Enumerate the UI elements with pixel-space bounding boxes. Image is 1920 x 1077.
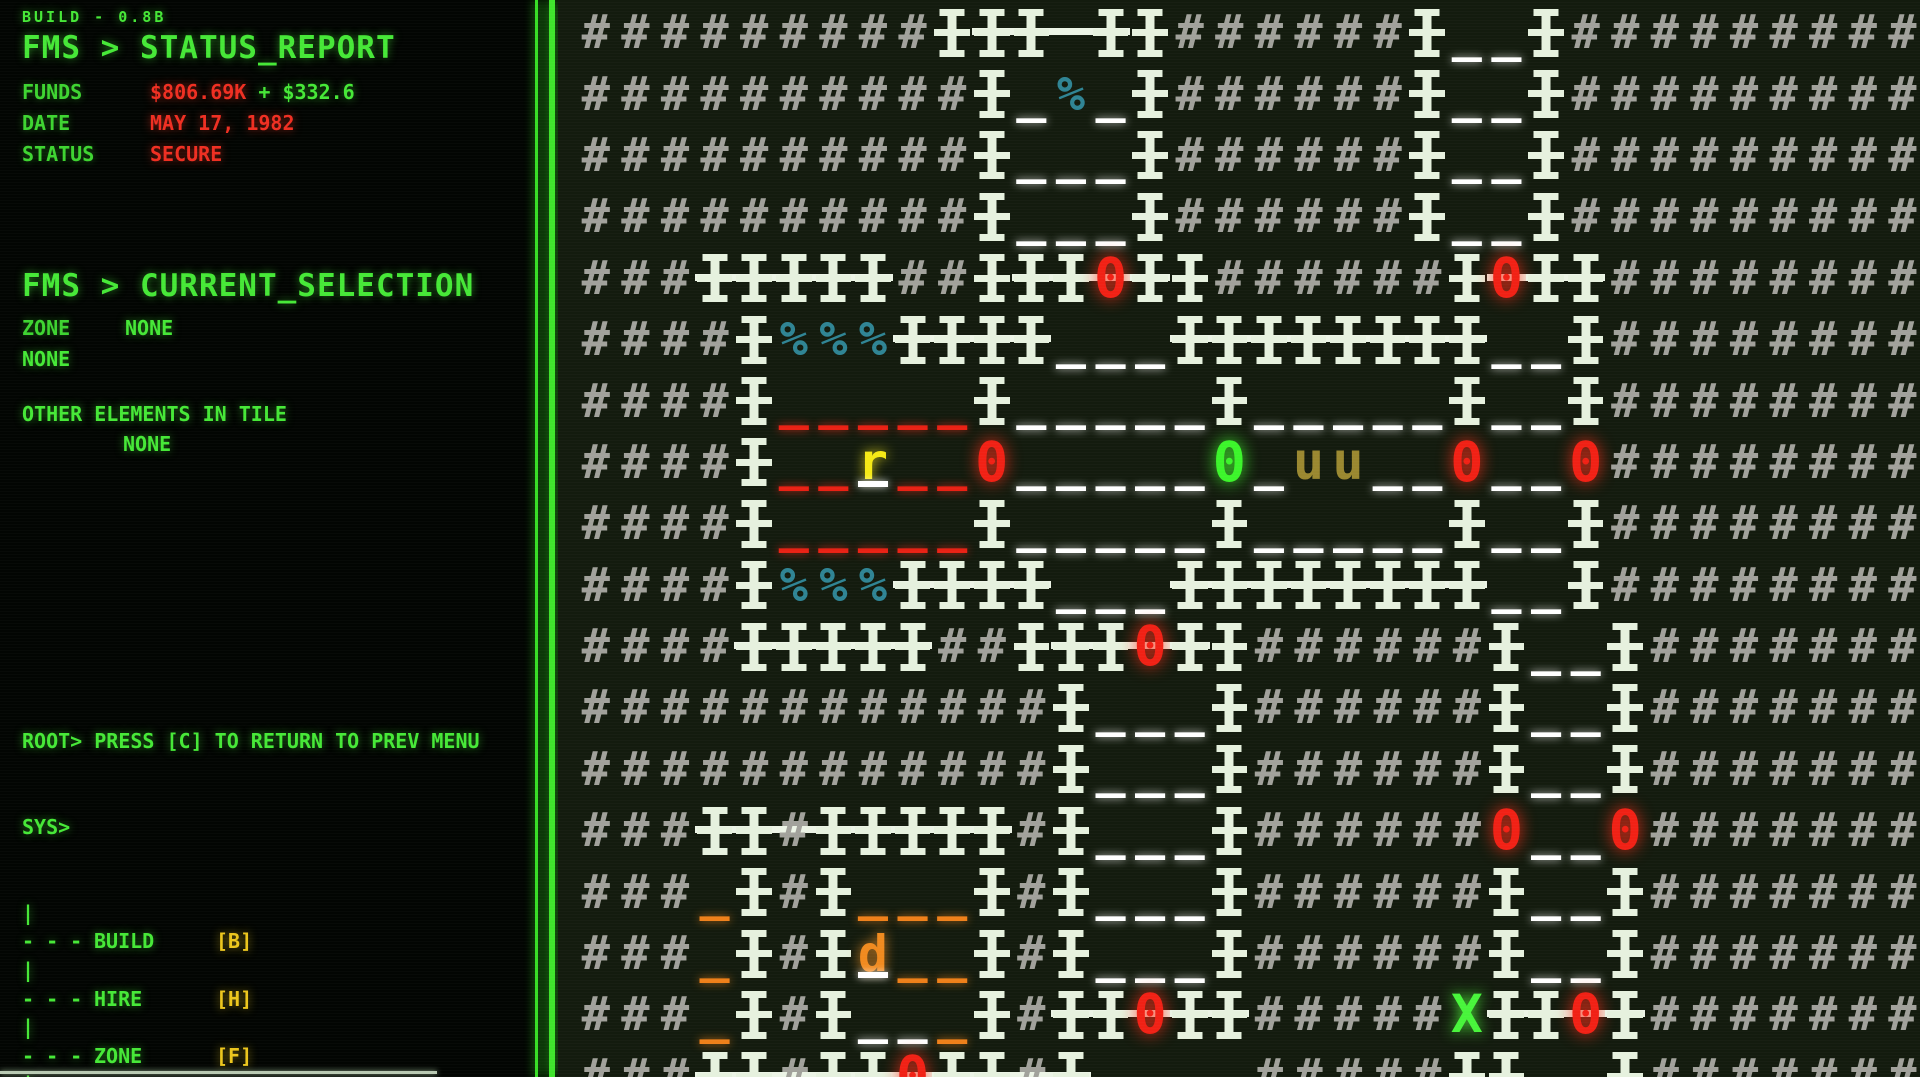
map-cell[interactable] [774, 616, 814, 677]
map-cell[interactable]: 0 [972, 432, 1012, 493]
map-cell[interactable] [1249, 309, 1289, 370]
map-cell[interactable]: # [576, 616, 616, 677]
map-cell[interactable] [1605, 861, 1645, 922]
map-cell[interactable]: _ [1091, 63, 1131, 124]
map-cell[interactable]: _ [1487, 63, 1527, 124]
map-cell[interactable] [1328, 555, 1368, 616]
map-cell[interactable]: # [1645, 677, 1685, 738]
map-cell[interactable]: # [853, 677, 893, 738]
map-cell[interactable] [1566, 248, 1606, 309]
map-cell[interactable]: # [734, 186, 774, 247]
map-cell[interactable] [1051, 2, 1091, 63]
map-cell[interactable] [695, 248, 735, 309]
map-cell[interactable]: # [1645, 984, 1685, 1045]
map-cell[interactable]: # [1368, 125, 1408, 186]
map-cell[interactable] [1447, 370, 1487, 431]
map-cell[interactable] [972, 248, 1012, 309]
map-cell[interactable]: # [576, 432, 616, 493]
map-cell[interactable]: # [1764, 370, 1804, 431]
map-cell[interactable] [972, 800, 1012, 861]
map-cell[interactable]: # [1407, 861, 1447, 922]
map-cell[interactable]: # [1803, 677, 1843, 738]
map-cell[interactable]: # [576, 370, 616, 431]
map-cell[interactable] [1249, 555, 1289, 616]
map-cell[interactable] [932, 309, 972, 370]
map-cell[interactable] [853, 616, 893, 677]
map-cell[interactable]: # [1645, 186, 1685, 247]
map-cell[interactable]: # [695, 2, 735, 63]
map-cell[interactable]: # [1447, 739, 1487, 800]
map-cell[interactable]: _ [695, 923, 735, 984]
map-cell[interactable]: _ [1407, 432, 1447, 493]
map-cell[interactable]: # [616, 1046, 656, 1077]
map-cell[interactable] [1605, 1046, 1645, 1077]
map-cell[interactable]: # [1012, 861, 1052, 922]
map-cell[interactable] [1051, 800, 1091, 861]
map-cell[interactable]: # [1764, 800, 1804, 861]
map-cell[interactable]: # [1724, 1046, 1764, 1077]
map-cell[interactable]: # [1289, 923, 1329, 984]
map-cell[interactable]: # [1249, 923, 1289, 984]
map-cell[interactable] [1170, 616, 1210, 677]
map-cell[interactable]: # [1724, 63, 1764, 124]
map-cell[interactable]: _ [1170, 861, 1210, 922]
map-cell[interactable]: _ [1091, 370, 1131, 431]
map-cell[interactable] [695, 1046, 735, 1077]
map-cell[interactable] [1210, 739, 1250, 800]
map-cell[interactable]: _ [1487, 370, 1527, 431]
map-cell[interactable]: _ [932, 861, 972, 922]
map-cell[interactable]: # [1843, 309, 1883, 370]
map-cell[interactable]: # [1685, 2, 1725, 63]
map-cell[interactable] [695, 800, 735, 861]
map-cell[interactable] [1605, 984, 1645, 1045]
map-cell[interactable] [814, 923, 854, 984]
map-cell[interactable]: # [1764, 984, 1804, 1045]
map-cell[interactable] [1447, 1046, 1487, 1077]
map-cell[interactable]: # [1724, 432, 1764, 493]
map-cell[interactable]: % [1051, 63, 1091, 124]
map-cell[interactable] [814, 248, 854, 309]
map-cell[interactable]: # [1368, 1046, 1408, 1077]
map-cell[interactable]: # [1210, 63, 1250, 124]
map-cell[interactable]: # [695, 309, 735, 370]
map-cell[interactable] [1526, 186, 1566, 247]
map-cell[interactable]: # [1685, 186, 1725, 247]
map-cell[interactable] [1051, 1046, 1091, 1077]
map-cell[interactable] [734, 861, 774, 922]
map-cell[interactable]: # [893, 2, 933, 63]
map-cell[interactable]: # [1407, 616, 1447, 677]
map-cell[interactable]: # [1328, 923, 1368, 984]
map-cell[interactable]: # [1407, 923, 1447, 984]
map-cell[interactable]: # [814, 677, 854, 738]
map-cell[interactable]: # [576, 248, 616, 309]
map-cell[interactable]: _ [1130, 555, 1170, 616]
map-cell[interactable]: # [1764, 63, 1804, 124]
map-cell[interactable] [1487, 1046, 1527, 1077]
map-cell[interactable]: # [814, 739, 854, 800]
map-cell[interactable] [972, 186, 1012, 247]
map-cell[interactable]: _ [1091, 493, 1131, 554]
map-cell[interactable]: # [1447, 861, 1487, 922]
map-cell[interactable] [1526, 2, 1566, 63]
map-cell[interactable]: # [1210, 2, 1250, 63]
map-cell[interactable]: 0 [1566, 984, 1606, 1045]
map-cell[interactable]: # [1724, 186, 1764, 247]
map-cell[interactable]: u [1328, 432, 1368, 493]
map-cell[interactable]: # [1843, 1046, 1883, 1077]
map-cell[interactable]: _ [853, 370, 893, 431]
map-cell[interactable]: _ [1051, 309, 1091, 370]
map-cell[interactable] [972, 2, 1012, 63]
map-cell[interactable] [1210, 370, 1250, 431]
map-cell[interactable]: # [1803, 309, 1843, 370]
map-cell[interactable]: _ [1091, 125, 1131, 186]
map-cell[interactable]: # [1289, 186, 1329, 247]
map-cell[interactable]: # [1407, 984, 1447, 1045]
map-cell[interactable]: # [1724, 493, 1764, 554]
map-cell[interactable] [932, 800, 972, 861]
map-cell[interactable]: X [1447, 984, 1487, 1045]
map-cell[interactable] [1368, 309, 1408, 370]
map-cell[interactable]: # [1210, 125, 1250, 186]
map-cell[interactable]: # [576, 186, 616, 247]
map-cell[interactable]: # [1645, 923, 1685, 984]
map-cell[interactable]: # [1883, 555, 1920, 616]
map-cell[interactable]: # [1328, 2, 1368, 63]
map-cell[interactable]: # [1447, 923, 1487, 984]
map-cell[interactable]: # [774, 677, 814, 738]
map-cell[interactable]: # [774, 2, 814, 63]
map-cell[interactable]: r [853, 432, 893, 493]
map-cell[interactable]: % [814, 309, 854, 370]
map-cell[interactable]: # [1566, 186, 1606, 247]
map-cell[interactable]: # [774, 739, 814, 800]
map-cell[interactable]: # [695, 555, 735, 616]
map-cell[interactable] [734, 800, 774, 861]
map-cell[interactable]: # [1803, 186, 1843, 247]
map-cell[interactable]: _ [1447, 2, 1487, 63]
map-cell[interactable]: _ [1130, 800, 1170, 861]
map-cell[interactable]: _ [1289, 493, 1329, 554]
map-cell[interactable]: # [1645, 1046, 1685, 1077]
map-cell[interactable]: # [1803, 1046, 1843, 1077]
map-cell[interactable]: # [1724, 125, 1764, 186]
map-cell[interactable]: # [1605, 125, 1645, 186]
map-cell[interactable]: # [1210, 186, 1250, 247]
map-cell[interactable]: # [655, 309, 695, 370]
map-cell[interactable]: # [1249, 616, 1289, 677]
map-cell[interactable] [972, 984, 1012, 1045]
map-cell[interactable]: # [1368, 248, 1408, 309]
map-cell[interactable]: # [1328, 616, 1368, 677]
map-cell[interactable]: # [1328, 125, 1368, 186]
map-cell[interactable]: _ [1526, 432, 1566, 493]
map-cell[interactable]: # [1843, 923, 1883, 984]
map-cell[interactable]: # [576, 493, 616, 554]
map-cell[interactable]: _ [1012, 370, 1052, 431]
map-cell[interactable]: _ [1249, 432, 1289, 493]
map-cell[interactable] [1526, 1046, 1566, 1077]
map-cell[interactable]: # [1605, 493, 1645, 554]
map-cell[interactable]: # [853, 2, 893, 63]
map-cell[interactable]: # [1289, 1046, 1329, 1077]
map-cell[interactable] [972, 555, 1012, 616]
map-cell[interactable]: # [1843, 125, 1883, 186]
map-cell[interactable]: # [1843, 861, 1883, 922]
map-cell[interactable]: _ [1566, 923, 1606, 984]
map-cell[interactable]: # [655, 432, 695, 493]
map-cell[interactable]: _ [932, 984, 972, 1045]
map-cell[interactable]: # [1803, 739, 1843, 800]
map-cell[interactable]: # [1883, 248, 1920, 309]
map-cell[interactable]: # [1803, 2, 1843, 63]
map-cell[interactable]: # [1685, 800, 1725, 861]
map-cell[interactable]: _ [853, 984, 893, 1045]
map-cell[interactable]: # [1764, 309, 1804, 370]
map-cell[interactable] [734, 923, 774, 984]
map-cell[interactable]: # [734, 739, 774, 800]
map-cell[interactable]: # [1803, 125, 1843, 186]
map-cell[interactable]: # [1645, 432, 1685, 493]
map-cell[interactable]: # [1368, 677, 1408, 738]
map-cell[interactable]: # [1883, 616, 1920, 677]
map-cell[interactable]: # [1249, 861, 1289, 922]
map-cell[interactable] [1407, 125, 1447, 186]
map-cell[interactable]: # [1724, 248, 1764, 309]
map-cell[interactable]: # [1368, 984, 1408, 1045]
map-cell[interactable]: # [1843, 616, 1883, 677]
map-cell[interactable]: # [695, 186, 735, 247]
map-cell[interactable] [734, 1046, 774, 1077]
map-cell[interactable]: # [1249, 739, 1289, 800]
map-cell[interactable] [1210, 677, 1250, 738]
map-cell[interactable] [1210, 1046, 1250, 1077]
map-cell[interactable]: # [774, 186, 814, 247]
map-cell[interactable]: _ [893, 370, 933, 431]
map-cell[interactable]: # [616, 616, 656, 677]
map-cell[interactable]: # [1724, 555, 1764, 616]
map-cell[interactable]: _ [893, 493, 933, 554]
map-cell[interactable] [1566, 555, 1606, 616]
map-cell[interactable]: % [814, 555, 854, 616]
map-cell[interactable]: # [893, 739, 933, 800]
map-cell[interactable] [774, 248, 814, 309]
map-cell[interactable]: _ [1487, 2, 1527, 63]
map-cell[interactable]: # [655, 677, 695, 738]
map-cell[interactable]: # [1566, 63, 1606, 124]
map-cell[interactable]: # [1685, 923, 1725, 984]
map-cell[interactable] [972, 370, 1012, 431]
map-cell[interactable]: 0 [1091, 248, 1131, 309]
map-cell[interactable]: # [1685, 432, 1725, 493]
map-cell[interactable]: # [1249, 677, 1289, 738]
map-cell[interactable] [1487, 984, 1527, 1045]
map-cell[interactable]: # [932, 677, 972, 738]
map-cell[interactable] [1130, 125, 1170, 186]
map-cell[interactable]: # [932, 125, 972, 186]
map-cell[interactable]: # [1328, 677, 1368, 738]
map-cell[interactable]: # [1447, 677, 1487, 738]
map-cell[interactable]: # [695, 370, 735, 431]
map-cell[interactable]: # [774, 923, 814, 984]
map-cell[interactable]: _ [1130, 677, 1170, 738]
map-cell[interactable]: # [1368, 2, 1408, 63]
map-cell[interactable]: _ [1487, 309, 1527, 370]
map-cell[interactable]: _ [1051, 555, 1091, 616]
map-cell[interactable]: # [1605, 2, 1645, 63]
map-cell[interactable]: # [695, 493, 735, 554]
map-cell[interactable] [814, 984, 854, 1045]
map-cell[interactable]: _ [1170, 493, 1210, 554]
map-cell[interactable]: # [1249, 800, 1289, 861]
map-cell[interactable]: # [1447, 800, 1487, 861]
map-cell[interactable]: # [695, 739, 735, 800]
map-cell[interactable]: # [1605, 370, 1645, 431]
map-cell[interactable]: # [616, 370, 656, 431]
map-cell[interactable]: # [1764, 739, 1804, 800]
map-cell[interactable]: # [695, 63, 735, 124]
map-cell[interactable]: 0 [1210, 432, 1250, 493]
map-cell[interactable] [1012, 2, 1052, 63]
map-cell[interactable] [1170, 1046, 1210, 1077]
map-cell[interactable]: # [1407, 677, 1447, 738]
map-cell[interactable]: _ [814, 493, 854, 554]
map-cell[interactable]: # [1012, 677, 1052, 738]
map-cell[interactable]: # [1605, 555, 1645, 616]
map-cell[interactable] [1091, 1046, 1131, 1077]
map-cell[interactable]: # [616, 800, 656, 861]
map-cell[interactable] [1526, 248, 1566, 309]
map-cell[interactable]: # [893, 125, 933, 186]
map-cell[interactable] [1605, 616, 1645, 677]
map-cell[interactable]: # [893, 186, 933, 247]
map-cell[interactable]: _ [1487, 186, 1527, 247]
map-cell[interactable]: # [1764, 677, 1804, 738]
map-cell[interactable]: # [1566, 2, 1606, 63]
map-cell[interactable]: _ [1170, 923, 1210, 984]
map-cell[interactable]: d [853, 923, 893, 984]
map-cell[interactable]: _ [1130, 861, 1170, 922]
map-cell[interactable]: # [1685, 739, 1725, 800]
map-cell[interactable]: _ [1249, 493, 1289, 554]
map-cell[interactable] [1210, 309, 1250, 370]
map-cell[interactable]: # [1843, 248, 1883, 309]
map-cell[interactable] [1210, 984, 1250, 1045]
map-cell[interactable]: _ [814, 370, 854, 431]
map-cell[interactable]: _ [1091, 432, 1131, 493]
map-cell[interactable]: # [655, 248, 695, 309]
map-cell[interactable]: # [1407, 739, 1447, 800]
map-cell[interactable] [1051, 861, 1091, 922]
map-cell[interactable]: _ [1526, 923, 1566, 984]
map-cell[interactable]: # [1210, 248, 1250, 309]
map-cell[interactable]: # [1803, 370, 1843, 431]
map-cell[interactable]: # [1685, 1046, 1725, 1077]
map-cell[interactable] [853, 1046, 893, 1077]
map-cell[interactable]: # [1685, 616, 1725, 677]
map-cell[interactable]: # [853, 739, 893, 800]
map-cell[interactable]: _ [1051, 370, 1091, 431]
map-cell[interactable]: # [576, 2, 616, 63]
map-cell[interactable]: # [1764, 2, 1804, 63]
map-cell[interactable]: # [1289, 616, 1329, 677]
map-cell[interactable] [1447, 248, 1487, 309]
map-cell[interactable]: # [1645, 125, 1685, 186]
map-cell[interactable]: _ [1328, 493, 1368, 554]
map-cell[interactable]: # [655, 739, 695, 800]
map-cell[interactable]: # [972, 677, 1012, 738]
map-cell[interactable]: # [814, 2, 854, 63]
map-cell[interactable]: # [1170, 186, 1210, 247]
map-cell[interactable]: # [932, 616, 972, 677]
map-cell[interactable]: # [616, 984, 656, 1045]
map-cell[interactable]: _ [1051, 493, 1091, 554]
map-cell[interactable]: _ [1328, 370, 1368, 431]
map-cell[interactable]: # [695, 677, 735, 738]
map-cell[interactable] [853, 248, 893, 309]
map-cell[interactable]: # [655, 800, 695, 861]
map-cell[interactable]: _ [1012, 493, 1052, 554]
map-cell[interactable]: # [1883, 923, 1920, 984]
map-cell[interactable]: % [853, 309, 893, 370]
map-cell[interactable]: _ [1091, 861, 1131, 922]
map-cell[interactable]: _ [932, 432, 972, 493]
map-cell[interactable]: # [576, 677, 616, 738]
map-cell[interactable]: _ [893, 923, 933, 984]
map-cell[interactable]: # [616, 493, 656, 554]
map-cell[interactable]: _ [893, 861, 933, 922]
map-cell[interactable] [734, 432, 774, 493]
map-cell[interactable]: _ [1407, 493, 1447, 554]
map-cell[interactable] [1210, 493, 1250, 554]
map-cell[interactable]: # [1605, 63, 1645, 124]
map-cell[interactable]: # [1724, 616, 1764, 677]
map-cell[interactable]: # [1883, 677, 1920, 738]
map-cell[interactable]: # [734, 125, 774, 186]
map-cell[interactable]: _ [1368, 493, 1408, 554]
map-cell[interactable]: # [1803, 800, 1843, 861]
map-cell[interactable]: # [1170, 2, 1210, 63]
map-cell[interactable]: # [1605, 248, 1645, 309]
map-cell[interactable] [893, 616, 933, 677]
map-cell[interactable]: # [853, 186, 893, 247]
map-cell[interactable]: _ [1091, 800, 1131, 861]
map-cell[interactable] [734, 616, 774, 677]
map-cell[interactable]: # [1645, 248, 1685, 309]
map-cell[interactable] [1289, 309, 1329, 370]
map-cell[interactable]: # [576, 1046, 616, 1077]
map-cell[interactable]: # [734, 63, 774, 124]
map-cell[interactable]: # [1249, 984, 1289, 1045]
map-cell[interactable]: 0 [1605, 800, 1645, 861]
map-cell[interactable] [1566, 493, 1606, 554]
map-cell[interactable]: # [1289, 63, 1329, 124]
map-cell[interactable]: _ [1130, 493, 1170, 554]
map-cell[interactable]: _ [1487, 432, 1527, 493]
map-cell[interactable]: # [853, 63, 893, 124]
map-cell[interactable]: # [1368, 861, 1408, 922]
map-cell[interactable]: _ [1170, 739, 1210, 800]
map-cell[interactable]: # [1289, 677, 1329, 738]
map-cell[interactable]: # [1645, 739, 1685, 800]
map-cell[interactable]: _ [1130, 432, 1170, 493]
map-cell[interactable]: # [655, 555, 695, 616]
map-cell[interactable]: # [616, 923, 656, 984]
map-cell[interactable]: # [1012, 739, 1052, 800]
map-cell[interactable] [1487, 923, 1527, 984]
